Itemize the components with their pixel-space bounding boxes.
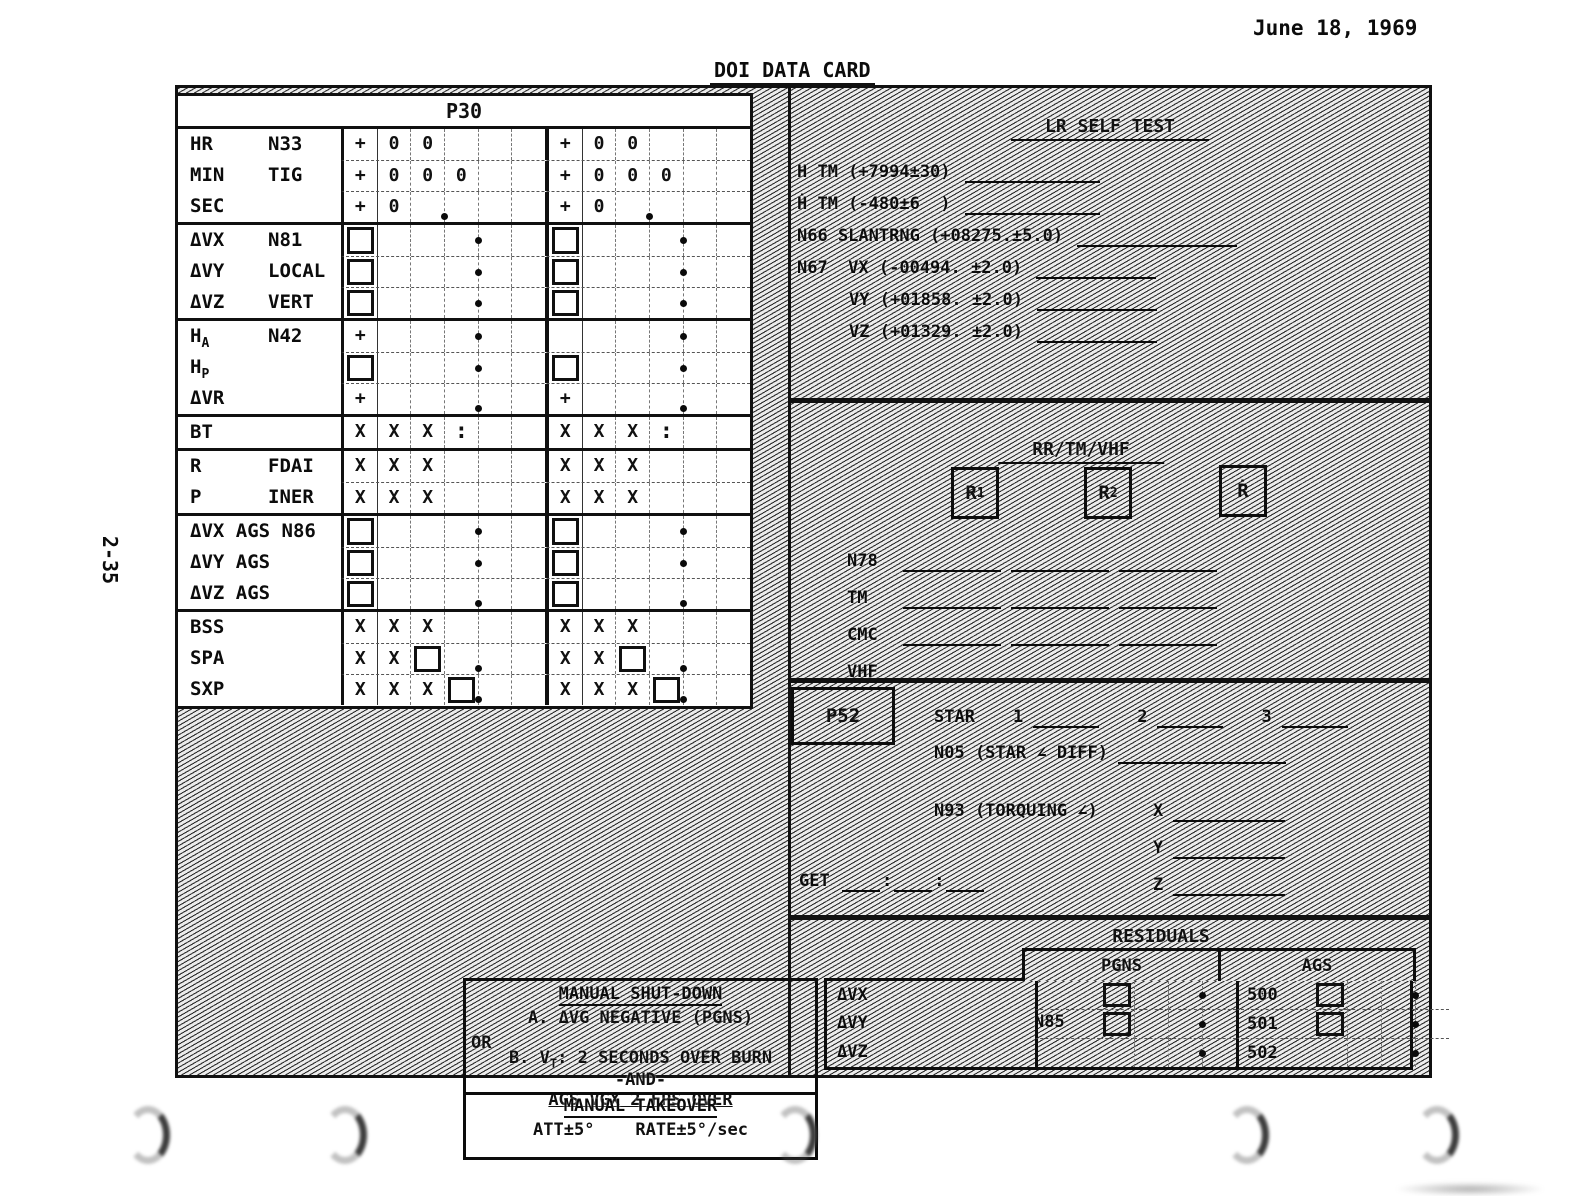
p52-star-number: 2	[1137, 707, 1147, 727]
p30-cell	[478, 644, 512, 674]
p30-row-grid: +0+0	[341, 191, 750, 222]
decimal-point	[475, 665, 482, 672]
p30-cell	[410, 644, 444, 674]
p30-cell	[683, 548, 717, 578]
p30-cell: X	[377, 451, 411, 482]
decimal-point	[680, 665, 687, 672]
residuals-row: ΔVZ502	[827, 1038, 1410, 1067]
decimal-point	[475, 528, 482, 535]
p30-row-labels: ΔVX AGS N86	[178, 516, 341, 547]
p30-cell	[683, 321, 717, 352]
p52-torquing-axes: XYZ	[1153, 801, 1285, 912]
p30-row-label: SPA	[190, 647, 224, 669]
p30-row-grid	[341, 516, 750, 547]
p30-entry-group: +0	[344, 192, 545, 222]
p30-row-labels: ΔVYLOCAL	[178, 256, 341, 287]
p30-entry-group: +	[344, 321, 545, 352]
p30-cell	[377, 353, 411, 383]
p30-cell: X	[344, 417, 377, 448]
p30-cell	[478, 384, 512, 414]
p30-cell: 0	[615, 161, 649, 191]
p30-block: ΔVXN81ΔVYLOCALΔVZVERT	[178, 222, 750, 318]
lr-test-label: VY (+01858. ±2.0)	[849, 290, 1023, 310]
p30-cell	[683, 257, 717, 287]
manual-takeover-title: MANUAL TAKEOVER	[564, 1096, 718, 1118]
p30-cell: X	[549, 644, 582, 674]
p30-cell	[716, 161, 750, 191]
p30-row-sublabel: N42	[268, 325, 302, 347]
p52-get-separator: :	[882, 871, 892, 891]
p52-axis-label: Z	[1153, 875, 1163, 895]
p30-cell	[549, 579, 582, 609]
residuals-sign-cell	[1313, 1009, 1347, 1038]
p30-cell: X	[410, 417, 444, 448]
p30-cell	[478, 129, 512, 160]
p30-entry-group	[344, 288, 545, 318]
p30-cell	[444, 579, 478, 609]
p30-row-labels: BSS	[178, 612, 341, 643]
p30-cell	[478, 288, 512, 318]
p30-cell	[511, 192, 545, 222]
p30-entry-group: XXX	[549, 675, 750, 705]
p30-cell	[716, 257, 750, 287]
lr-test-label: VZ (+01329. ±2.0)	[849, 322, 1023, 342]
p30-entry-group	[549, 225, 750, 256]
p30-cell	[649, 548, 683, 578]
p30-cell	[444, 483, 478, 513]
p30-cell	[683, 579, 717, 609]
p30-cell	[649, 129, 683, 160]
rr-box-r1: R1	[951, 467, 999, 519]
residuals-sign-cell	[1100, 1038, 1134, 1067]
rr-box-subscript: 2	[1110, 486, 1118, 501]
blank-entry-line	[946, 889, 984, 892]
p30-row-label: ΔVY	[190, 260, 224, 282]
p30-cell	[377, 225, 411, 256]
data-card: P30 HRN33+00+00MINTIG+000+000SEC+0+0ΔVXN…	[175, 85, 1432, 1078]
p30-cell	[377, 548, 411, 578]
p30-cell: X	[615, 451, 649, 482]
p30-cell	[683, 644, 717, 674]
blank-entry-line	[1036, 276, 1156, 279]
p30-cell	[649, 579, 683, 609]
residuals-cell	[1347, 981, 1381, 1009]
p30-cell	[683, 451, 717, 482]
lr-test-label: Ḣ TM (-480±6 )	[797, 194, 951, 214]
p30-cell	[683, 161, 717, 191]
p30-cell	[511, 384, 545, 414]
p30-row-labels: ΔVXN81	[178, 225, 341, 256]
decimal-point	[475, 333, 482, 340]
p30-cell	[478, 548, 512, 578]
section-residuals: RESIDUALS N85 PGNS AGS ΔVX500ΔVY501ΔVZ50…	[791, 915, 1429, 1075]
p30-row-label: ΔVZ AGS	[190, 582, 270, 604]
p30-row-labels: PINER	[178, 482, 341, 513]
p30-cell: X	[377, 675, 411, 705]
p30-cell	[582, 321, 616, 352]
p30-cell	[582, 516, 616, 547]
p30-cell	[478, 353, 512, 383]
p30-cell	[444, 353, 478, 383]
p30-cell: X	[410, 451, 444, 482]
p30-cell	[410, 225, 444, 256]
p30-row-sublabel: FDAI	[268, 455, 314, 477]
p52-box: P52	[791, 687, 895, 745]
p30-entry-group: XXX	[549, 612, 750, 643]
p30-entry-group	[549, 516, 750, 547]
binder-hole-shadow	[323, 1106, 367, 1164]
p30-cell: X	[549, 612, 582, 643]
p30-cell	[615, 548, 649, 578]
p30-cell	[344, 225, 377, 256]
residuals-sign-cell	[1313, 1038, 1347, 1067]
blank-entry-line	[894, 889, 932, 892]
p30-cell	[478, 612, 512, 643]
p30-cell	[615, 288, 649, 318]
p30-cell	[511, 288, 545, 318]
p52-n05-row: N05 (STAR ∠ DIFF)	[934, 743, 1286, 763]
decimal-point	[680, 405, 687, 412]
residuals-cell	[1168, 1009, 1202, 1038]
rr-row: N78	[847, 551, 1227, 588]
p30-cell	[444, 321, 478, 352]
decimal-point	[1199, 1050, 1206, 1057]
p30-block: HRN33+00+00MINTIG+000+000SEC+0+0	[178, 129, 750, 222]
decimal-point	[680, 560, 687, 567]
residuals-cell	[1347, 1038, 1381, 1067]
p30-cell	[344, 516, 377, 547]
p30-row-label: MIN	[190, 164, 224, 186]
residuals-sign-cell	[1313, 981, 1347, 1009]
p52-star-number: 1	[1013, 707, 1023, 727]
p30-cell	[511, 548, 545, 578]
section-p52: P52 STAR123 N05 (STAR ∠ DIFF) N93 (TORQU…	[791, 678, 1429, 915]
p30-cell	[615, 225, 649, 256]
p30-row-grid: XXXXXX	[341, 482, 750, 513]
p30-cell	[615, 644, 649, 674]
blank-entry-line	[1011, 643, 1109, 646]
p30-entry-group: XXX:	[344, 417, 545, 448]
rr-tm-vhf-title: RR/TM/VHF	[998, 439, 1164, 464]
decimal-point	[475, 365, 482, 372]
manual-shutdown-box: MANUAL SHUT-DOWN OR A. ΔVG NEGATIVE (PGN…	[463, 978, 818, 1160]
decimal-point	[680, 528, 687, 535]
p30-cell	[444, 612, 478, 643]
residuals-ags-code: 502	[1236, 1038, 1313, 1067]
p30-row-grid	[341, 547, 750, 578]
p30-cell: :	[444, 417, 478, 448]
decimal-point	[1412, 992, 1419, 999]
p30-cell	[511, 612, 545, 643]
blank-entry-line	[1173, 893, 1285, 896]
p30-row: HRN33+00+00	[178, 129, 750, 160]
p30-cell	[511, 129, 545, 160]
p30-row-labels: ΔVZ AGS	[178, 578, 341, 609]
p30-row-sublabel: VERT	[268, 291, 314, 313]
residuals-cell	[1134, 1038, 1168, 1067]
p30-entry-group	[344, 516, 545, 547]
p30-cell	[549, 321, 582, 352]
p30-cell	[582, 548, 616, 578]
document-page: June 18, 1969 DOI DATA CARD 2-35 P30 HRN…	[0, 0, 1569, 1196]
p30-row: ΔVZVERT	[178, 287, 750, 318]
p30-entry-group: XXX:	[549, 417, 750, 448]
p30-row-label: ΔVR	[190, 387, 224, 409]
p30-cell	[582, 257, 616, 287]
p30-cell: +	[344, 384, 377, 414]
p30-row-grid: +000+000	[341, 160, 750, 191]
p30-cell	[444, 451, 478, 482]
blank-entry-line	[1037, 340, 1157, 343]
p30-entry-group: +	[549, 384, 750, 414]
p30-row-label: R	[190, 455, 201, 477]
p30-cell	[478, 516, 512, 547]
p30-row-label: ΔVX AGS N86	[190, 520, 316, 542]
p30-cell: X	[344, 675, 377, 705]
p30-cell	[444, 548, 478, 578]
p30-cell	[582, 579, 616, 609]
p52-get-label: GET	[799, 871, 840, 891]
binder-hole-shadow	[1225, 1106, 1269, 1164]
p30-cell: 0	[410, 129, 444, 160]
p30-cell: X	[615, 675, 649, 705]
p30-cell	[649, 225, 683, 256]
p30-cell: 0	[377, 192, 411, 222]
p30-entry-group	[549, 579, 750, 609]
p30-row-label: HR	[190, 133, 213, 155]
residuals-cell	[1381, 1038, 1415, 1067]
residuals-cell	[1168, 1038, 1202, 1067]
lr-self-test-title: LR SELF TEST	[1011, 116, 1209, 141]
rr-box-subscript: 1	[977, 486, 985, 501]
decimal-point	[1412, 1021, 1419, 1028]
scan-smudge	[1395, 1182, 1545, 1196]
p30-cell	[478, 483, 512, 513]
blank-entry-line	[1157, 725, 1223, 728]
p30-cell	[377, 321, 411, 352]
p30-cell	[344, 548, 377, 578]
p30-cell: X	[377, 483, 411, 513]
p30-cell	[444, 288, 478, 318]
p30-row-labels: HAN42	[178, 321, 341, 352]
p30-row-labels: SEC	[178, 191, 341, 222]
p30-row-grid: XXXXXX	[341, 612, 750, 643]
p30-cell: 0	[582, 161, 616, 191]
p30-cell	[716, 612, 750, 643]
residuals-sign-cell	[1100, 981, 1134, 1009]
p30-row-sublabel: N33	[268, 133, 302, 155]
manual-shutdown-title: MANUAL SHUT-DOWN	[559, 984, 723, 1006]
p30-cell: +	[549, 129, 582, 160]
decimal-point	[475, 600, 482, 607]
blank-entry-line	[1011, 606, 1109, 609]
p30-cell: X	[615, 483, 649, 513]
p30-row-label: BT	[190, 421, 213, 443]
p30-row: ΔVR++	[178, 383, 750, 414]
p30-cell	[615, 321, 649, 352]
p30-cell	[649, 612, 683, 643]
decimal-point	[680, 300, 687, 307]
decimal-point	[680, 237, 687, 244]
manual-takeover-values: ATT±5° RATE±5°/sec	[466, 1120, 815, 1140]
p30-entry-group: +000	[344, 161, 545, 191]
p30-cell	[444, 129, 478, 160]
p30-entry-group: +00	[344, 129, 545, 160]
p30-cell	[511, 225, 545, 256]
p30-cell: X	[410, 483, 444, 513]
p30-cell: X	[582, 644, 616, 674]
p30-row-label: P	[190, 486, 201, 508]
rr-box-r2: R2	[1084, 467, 1132, 519]
p30-cell: :	[649, 417, 683, 448]
p30-row-grid: XXX:XXX:	[341, 417, 750, 448]
p30-cell	[511, 579, 545, 609]
p30-cell: +	[344, 321, 377, 352]
p30-entry-group: +0	[549, 192, 750, 222]
p30-row-grid	[341, 287, 750, 318]
p30-cell	[716, 417, 750, 448]
p30-cell: X	[615, 417, 649, 448]
p30-entry-group	[549, 257, 750, 287]
manual-item-a: A. ΔVG NEGATIVE (PGNS)	[466, 1008, 815, 1028]
p30-entry-group: XX	[549, 644, 750, 674]
p52-n93-label: N93 (TORQUING ∠)	[934, 801, 1098, 821]
p52-get-row: GET ::	[799, 871, 986, 891]
p30-row-labels: ΔVY AGS	[178, 547, 341, 578]
p30-cell: X	[344, 644, 377, 674]
p30-row-sublabel: INER	[268, 486, 314, 508]
blank-entry-line	[842, 889, 880, 892]
p30-row-labels: BT	[178, 417, 341, 448]
p30-cell	[377, 579, 411, 609]
p30-cell	[649, 675, 683, 705]
p30-cell	[716, 129, 750, 160]
p30-cell: X	[377, 612, 411, 643]
p30-row-label: ΔVZ	[190, 291, 224, 313]
decimal-point	[1199, 992, 1206, 999]
lr-test-row: N67 VX (-00494. ±2.0)	[797, 258, 1237, 290]
p30-cell	[410, 384, 444, 414]
p30-cell	[649, 288, 683, 318]
lr-test-label: N66 SLANTRNG (+08275.±5.0)	[797, 226, 1063, 246]
p30-entry-group: XXX	[344, 451, 545, 482]
residuals-ags-code: 500	[1236, 981, 1313, 1009]
residuals-table: PGNS AGS ΔVX500ΔVY501ΔVZ502	[824, 978, 1413, 1070]
residuals-rows: ΔVX500ΔVY501ΔVZ502	[827, 981, 1410, 1067]
p30-row: ΔVX AGS N86	[178, 516, 750, 547]
p30-cell	[549, 516, 582, 547]
p30-entry-group: XXX	[549, 483, 750, 513]
residuals-n85-column	[1035, 981, 1100, 1009]
p30-row-labels: SXP	[178, 674, 341, 705]
binder-hole-shadow	[126, 1106, 170, 1164]
decimal-point	[475, 405, 482, 412]
residuals-n85-column	[1035, 1038, 1100, 1067]
p30-block: RFDAIXXXXXXPINERXXXXXX	[178, 448, 750, 513]
page-date: June 18, 1969	[1253, 16, 1417, 40]
p30-row-grid: ++	[341, 383, 750, 414]
p30-cell: 0	[377, 161, 411, 191]
lr-test-row: VZ (+01329. ±2.0)	[849, 322, 1237, 354]
p30-cell	[511, 675, 545, 705]
p30-row-grid: XXXXXX	[341, 451, 750, 482]
p52-get-separator: :	[934, 871, 944, 891]
p30-cell	[716, 644, 750, 674]
p30-cell	[615, 192, 649, 222]
p30-cell	[683, 129, 717, 160]
p52-axis-row: Y	[1153, 838, 1285, 875]
p30-cell	[478, 161, 512, 191]
p30-row-label: BSS	[190, 616, 224, 638]
p30-cell	[683, 353, 717, 383]
p30-row-grid: XXXX	[341, 643, 750, 674]
blank-entry-line	[1173, 819, 1285, 822]
rr-row-label: N78	[847, 551, 903, 571]
p30-row-label: HP	[190, 356, 209, 382]
p30-table-body: HRN33+00+00MINTIG+000+000SEC+0+0ΔVXN81ΔV…	[178, 129, 750, 705]
p30-entry-group	[549, 353, 750, 383]
residuals-cell	[1415, 1038, 1449, 1067]
p30-cell	[683, 612, 717, 643]
p52-axis-label: X	[1153, 801, 1163, 821]
p30-entry-group	[344, 353, 545, 383]
p30-entry-group: +00	[549, 129, 750, 160]
p30-cell: X	[344, 451, 377, 482]
blank-entry-line	[1077, 244, 1237, 247]
decimal-point	[680, 696, 687, 703]
p30-row-label: ΔVY AGS	[190, 551, 270, 573]
p30-cell	[716, 321, 750, 352]
p30-row-labels: RFDAI	[178, 451, 341, 482]
p30-cell	[410, 516, 444, 547]
p30-cell	[444, 384, 478, 414]
residuals-row: ΔVY501	[827, 1009, 1410, 1038]
p30-entry-group: XXX	[344, 483, 545, 513]
residuals-pgns-header: PGNS	[1022, 948, 1221, 981]
p30-cell	[716, 579, 750, 609]
blank-entry-line	[965, 180, 1100, 183]
p30-cell	[410, 579, 444, 609]
p30-cell	[615, 579, 649, 609]
p52-axis-row: Z	[1153, 875, 1285, 912]
decimal-point	[680, 365, 687, 372]
p30-cell	[716, 548, 750, 578]
rr-row: TM	[847, 588, 1227, 625]
p30-entry-group: +	[344, 384, 545, 414]
p30-row: HAN42+	[178, 321, 750, 352]
p30-cell	[716, 451, 750, 482]
section-rr-tm-vhf: RR/TM/VHF R1R2Ṙ N78TMCMCVHF	[791, 398, 1429, 678]
p30-cell	[410, 353, 444, 383]
p30-row: BSSXXXXXX	[178, 612, 750, 643]
p52-n05-blank	[1118, 761, 1286, 764]
binder-hole-shadow	[1415, 1106, 1459, 1164]
p30-block: HAN42+HPΔVR++	[178, 318, 750, 414]
p30-cell	[716, 225, 750, 256]
residuals-cell	[1415, 981, 1449, 1009]
p30-cell: X	[410, 612, 444, 643]
p30-cell	[649, 516, 683, 547]
blank-entry-line	[1282, 725, 1348, 728]
rr-tm-vhf-rows: N78TMCMCVHF	[847, 551, 1227, 699]
decimal-point	[1199, 1021, 1206, 1028]
p30-cell	[615, 384, 649, 414]
p30-table-title: P30	[178, 96, 750, 129]
p30-cell	[649, 192, 683, 222]
p30-cell: X	[549, 451, 582, 482]
p30-cell: +	[549, 161, 582, 191]
residuals-row-label: ΔVX	[827, 981, 1035, 1009]
